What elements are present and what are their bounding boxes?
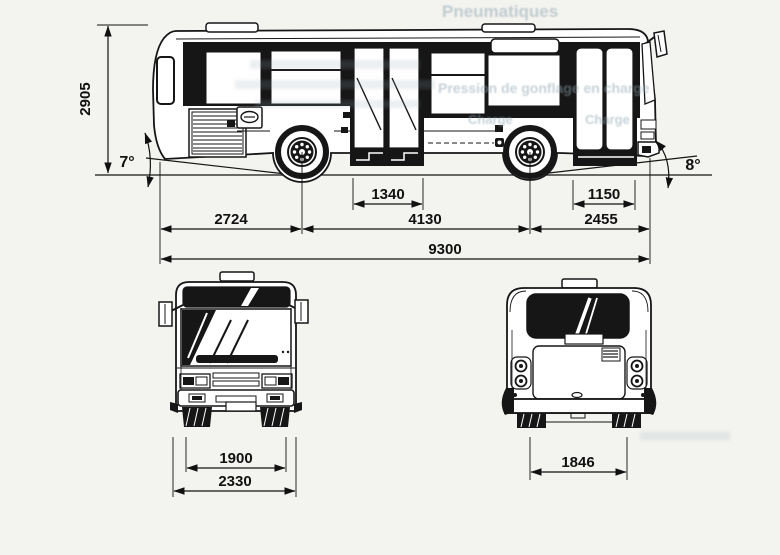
- rear-roof-hatch: [562, 279, 597, 288]
- label-overall-width: 2330: [218, 473, 251, 490]
- front-view: [159, 272, 308, 427]
- front-roof-hatch: [220, 272, 254, 281]
- ghost-line: Pression de gonflage en charge: [438, 80, 650, 96]
- label-approach-angle: 8°: [685, 157, 700, 174]
- route-display-box: [491, 39, 559, 53]
- side-window-2: [271, 51, 341, 104]
- label-middle-door-width: 1340: [371, 186, 404, 203]
- front-light-upper: [641, 120, 656, 129]
- dim-overall-height: [97, 25, 148, 173]
- departure-angle-arc: [145, 133, 150, 187]
- rear-wheels: [517, 413, 641, 428]
- label-front-overhang: 2455: [584, 211, 617, 228]
- front-door: [573, 42, 637, 166]
- label-departure-angle: 7°: [119, 154, 134, 171]
- door-sensor-mark: [495, 138, 504, 147]
- roof-hatch-rear: [206, 23, 258, 32]
- front-door-leaf-2: [606, 48, 633, 150]
- license-plate: [226, 402, 256, 411]
- rear-view: [502, 279, 657, 428]
- ghost-line: Charge: [585, 112, 630, 127]
- bus-dimensional-drawing: Pneumatiques Pression de gonflage en cha…: [0, 0, 780, 555]
- rear-center-box: [565, 334, 603, 344]
- logo-hatch: [237, 107, 262, 128]
- side-window-1: [206, 52, 261, 104]
- rear-departure-slant-line: [146, 158, 286, 174]
- ghost-text-smear: [250, 60, 420, 69]
- ghost-text-smear: [640, 432, 730, 440]
- body-fitting-1: [227, 120, 235, 127]
- roof-hatch-front: [482, 24, 535, 32]
- label-overall-length: 9300: [428, 241, 461, 258]
- body-fitting-3: [341, 127, 348, 133]
- label-wheelbase: 4130: [408, 211, 441, 228]
- label-overall-height: 2905: [77, 82, 94, 115]
- front-light-lower: [641, 132, 654, 139]
- rear-side-window: [157, 57, 174, 104]
- label-track-width: 1900: [219, 450, 252, 467]
- destination-sign: [183, 287, 290, 307]
- label-rear-overhang: 2724: [214, 211, 248, 228]
- ghost-heading: Pneumatiques: [442, 2, 558, 21]
- ghost-text-smear: [255, 100, 420, 108]
- ghost-line: Charge: [468, 112, 513, 127]
- ghost-text-smear: [235, 80, 435, 89]
- body-fitting-2: [343, 112, 350, 118]
- technical-drawing-svg: Pneumatiques Pression de gonflage en cha…: [0, 0, 780, 555]
- engine-hatch: [533, 346, 625, 399]
- front-door-leaf-1: [576, 48, 603, 150]
- windshield: [181, 309, 291, 366]
- label-rear-width: 1846: [561, 454, 594, 471]
- label-front-door-width: 1150: [588, 186, 621, 203]
- rear-window: [527, 294, 629, 338]
